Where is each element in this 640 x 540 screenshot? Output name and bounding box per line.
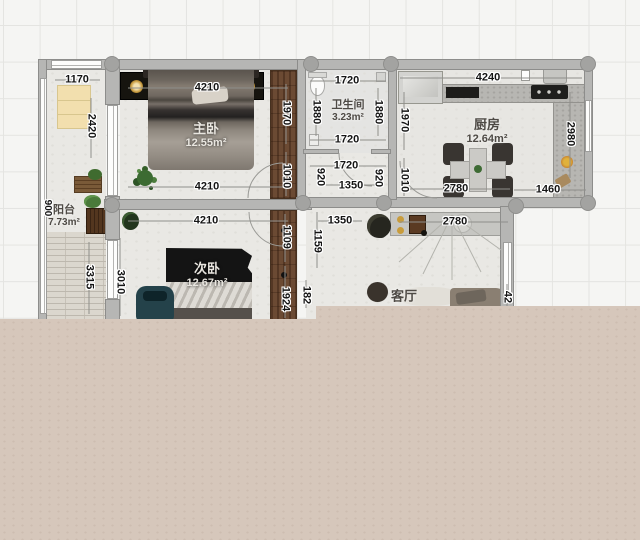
- dimension-label: 1159: [312, 229, 323, 253]
- room-label-balcony: 阳台 7.73m²: [48, 204, 80, 228]
- dimension-label: 1720: [335, 76, 359, 87]
- dimension-label: 1350: [339, 181, 363, 192]
- dimension-label: 1010: [399, 168, 410, 192]
- dimension-label: 1970: [281, 101, 292, 125]
- dimension-label: 1170: [65, 75, 89, 86]
- dimension-label: 3010: [115, 270, 126, 294]
- dimension-label: 182: [301, 286, 312, 304]
- dimension-label: 1880: [311, 100, 322, 124]
- room-label-master-bedroom: 主卧 12.55m²: [186, 122, 227, 150]
- dimension-label: 920: [315, 168, 326, 186]
- dimension-label: 1970: [399, 108, 410, 132]
- dimension-label: 4240: [476, 73, 500, 84]
- dimension-label: 1460: [536, 185, 560, 196]
- dimension-label: 3315: [84, 265, 95, 289]
- dimension-label: 1109: [281, 225, 292, 249]
- dimension-label: 1010: [281, 164, 292, 188]
- dimension-label: 4210: [195, 83, 219, 94]
- dimension-label: 1720: [334, 161, 358, 172]
- dimension-label: 1880: [373, 100, 384, 124]
- dimension-label: 1720: [335, 135, 359, 146]
- dimension-label: 4210: [194, 216, 218, 227]
- dimension-label: 920: [373, 169, 384, 187]
- bottom-mask-panel: [0, 319, 640, 540]
- dimension-label: 1924: [280, 287, 291, 311]
- dimension-label: 42: [502, 291, 513, 303]
- room-label-living: 客厅: [391, 290, 417, 305]
- dimension-label: 2780: [444, 184, 468, 195]
- dimension-label: 2980: [565, 122, 576, 146]
- room-label-bathroom: 卫生间 3.23m²: [332, 99, 365, 123]
- bottom-mask-panel: [316, 306, 640, 320]
- dimension-label: 4210: [195, 182, 219, 193]
- room-label-second-bedroom: 次卧 12.67m²: [187, 262, 228, 290]
- dimension-label: 2780: [443, 217, 467, 228]
- room-label-kitchen: 厨房 12.64m²: [467, 118, 508, 146]
- floorplan-canvas: 1170 2420 900 3315 4210 4210 1970 1010 1…: [0, 0, 640, 540]
- dimension-label: 1350: [328, 216, 352, 227]
- dimension-label: 2420: [86, 114, 97, 138]
